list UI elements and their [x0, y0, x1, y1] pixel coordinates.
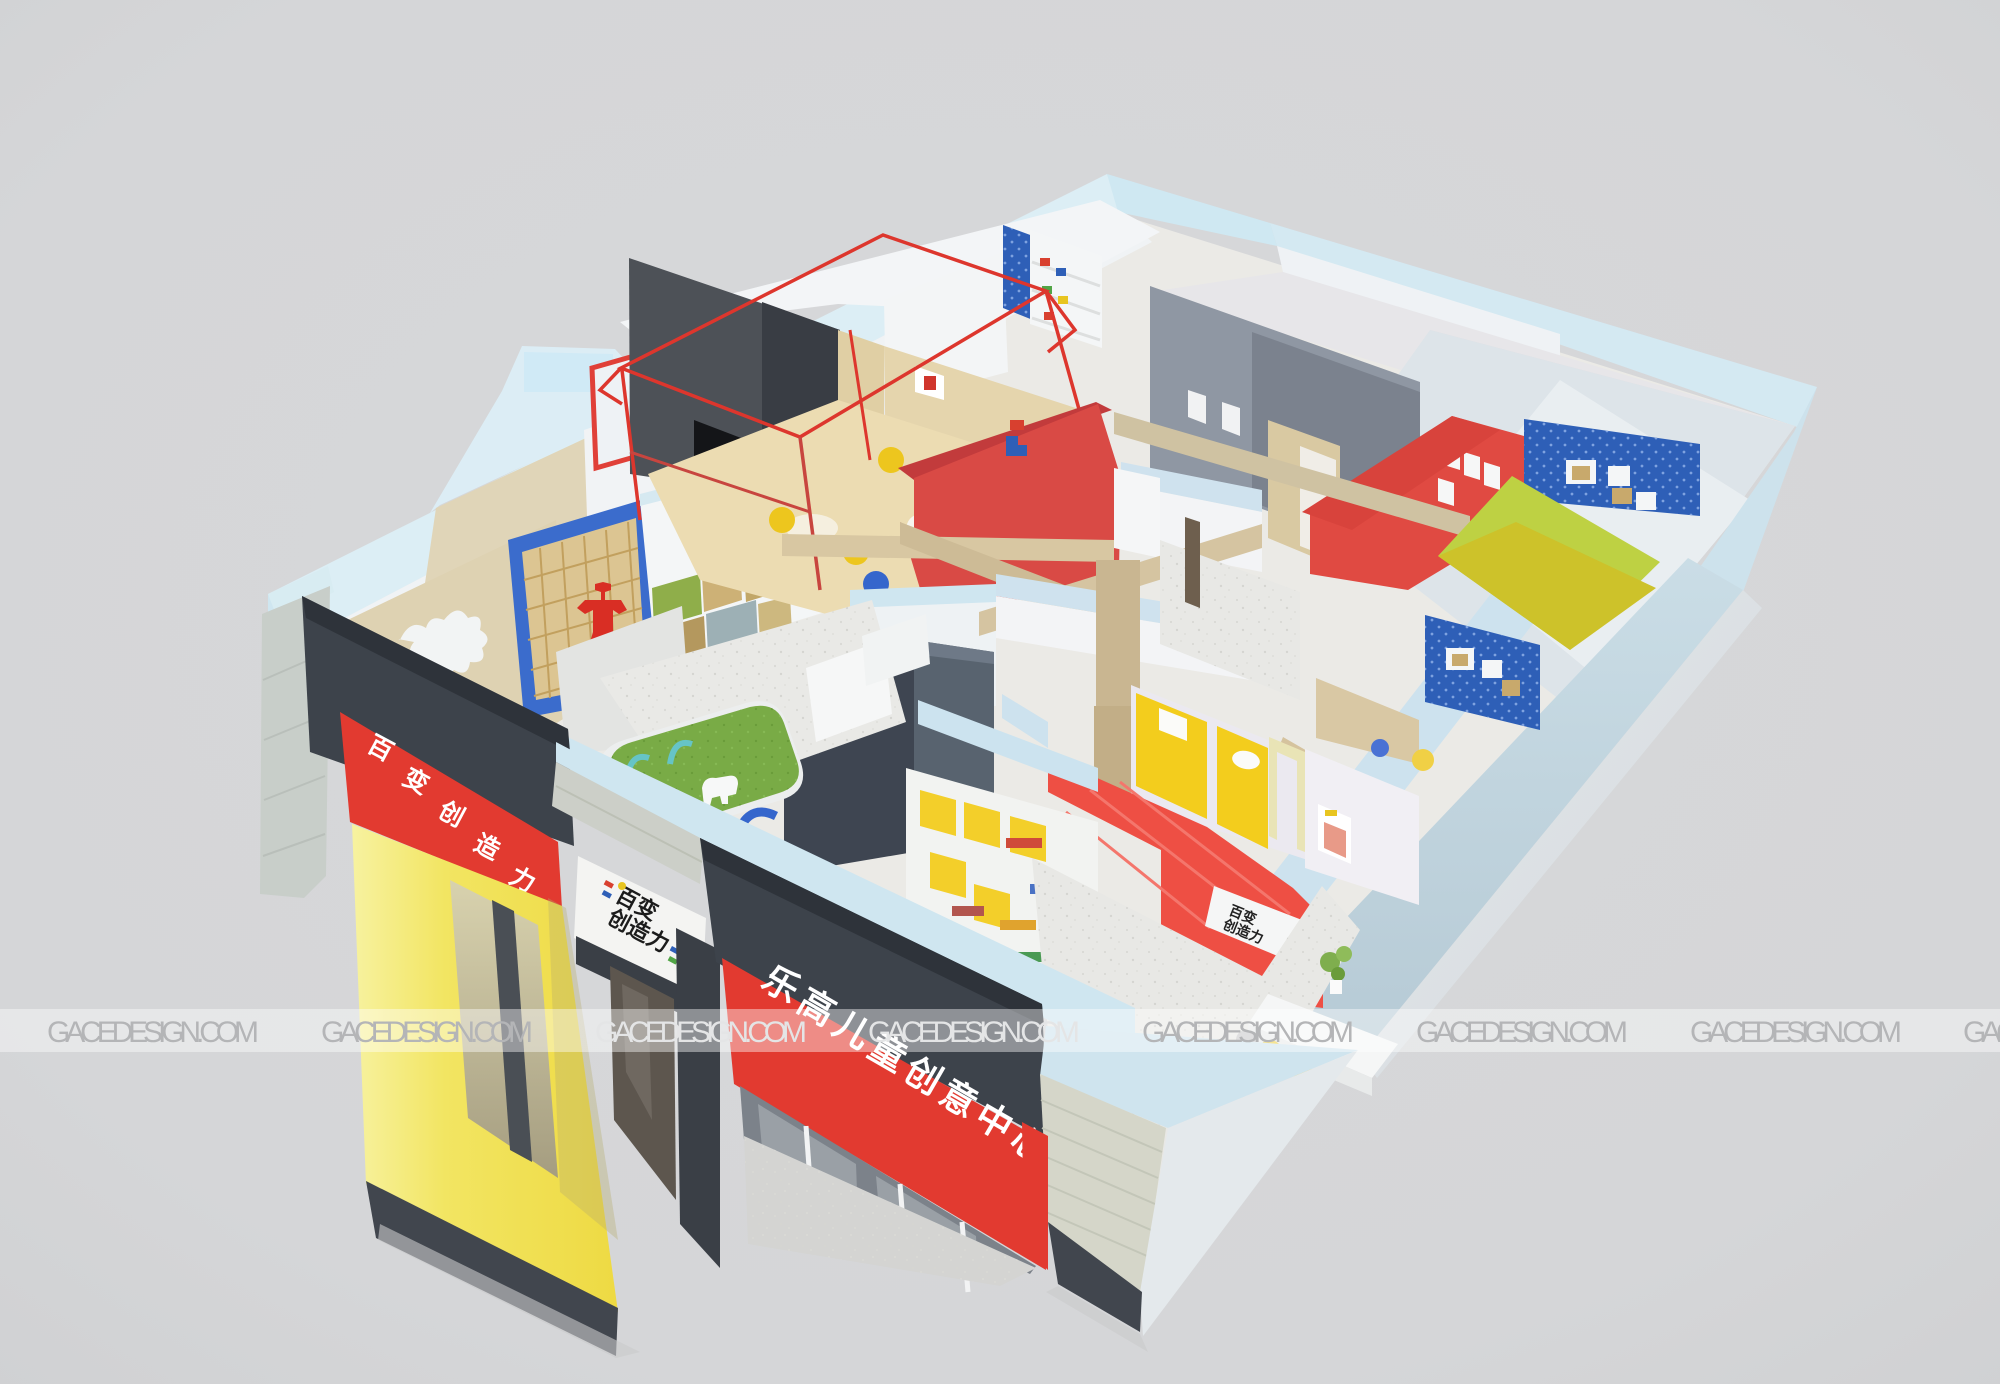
svg-text:GACEDESIGN.COM: GACEDESIGN.COM	[321, 1016, 533, 1049]
svg-text:GACEDESIGN.COM: GACEDESIGN.COM	[1416, 1016, 1628, 1049]
svg-text:GACEDESIGN.COM: GACEDESIGN.COM	[1142, 1016, 1354, 1049]
svg-text:GACEDESIGN.COM: GACEDESIGN.COM	[1690, 1016, 1902, 1049]
svg-text:GACEDESIGN.COM: GACEDESIGN.COM	[1963, 1016, 2000, 1049]
svg-text:GACEDESIGN.COM: GACEDESIGN.COM	[868, 1016, 1080, 1049]
svg-text:GACEDESIGN.COM: GACEDESIGN.COM	[595, 1016, 807, 1049]
svg-text:GACEDESIGN.COM: GACEDESIGN.COM	[47, 1016, 259, 1049]
